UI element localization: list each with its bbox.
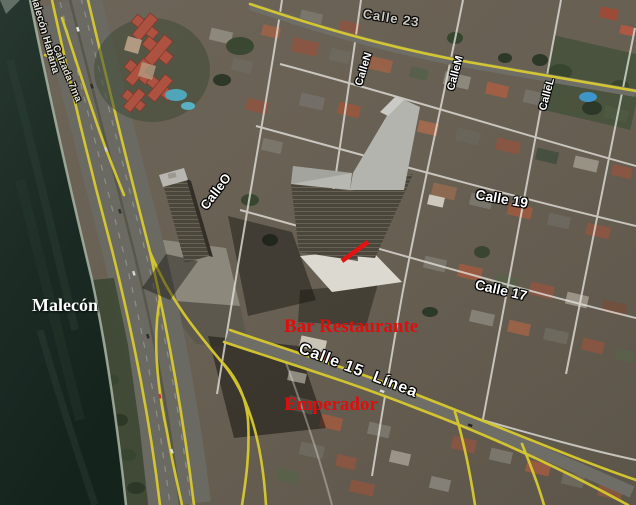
resort-pool [165, 89, 187, 101]
poi-label-line2: Emperador [284, 392, 418, 418]
area-label-malecon: Malecón [32, 296, 98, 314]
swimming-pool [579, 92, 597, 102]
satellite-map[interactable]: Malecón Habana Calzada 7ma Calle 23 Call… [0, 0, 636, 505]
poi-label-bar-restaurante-emperador: Bar Restaurante Emperador [284, 262, 418, 470]
poi-label-line1: Bar Restaurante [284, 314, 418, 340]
